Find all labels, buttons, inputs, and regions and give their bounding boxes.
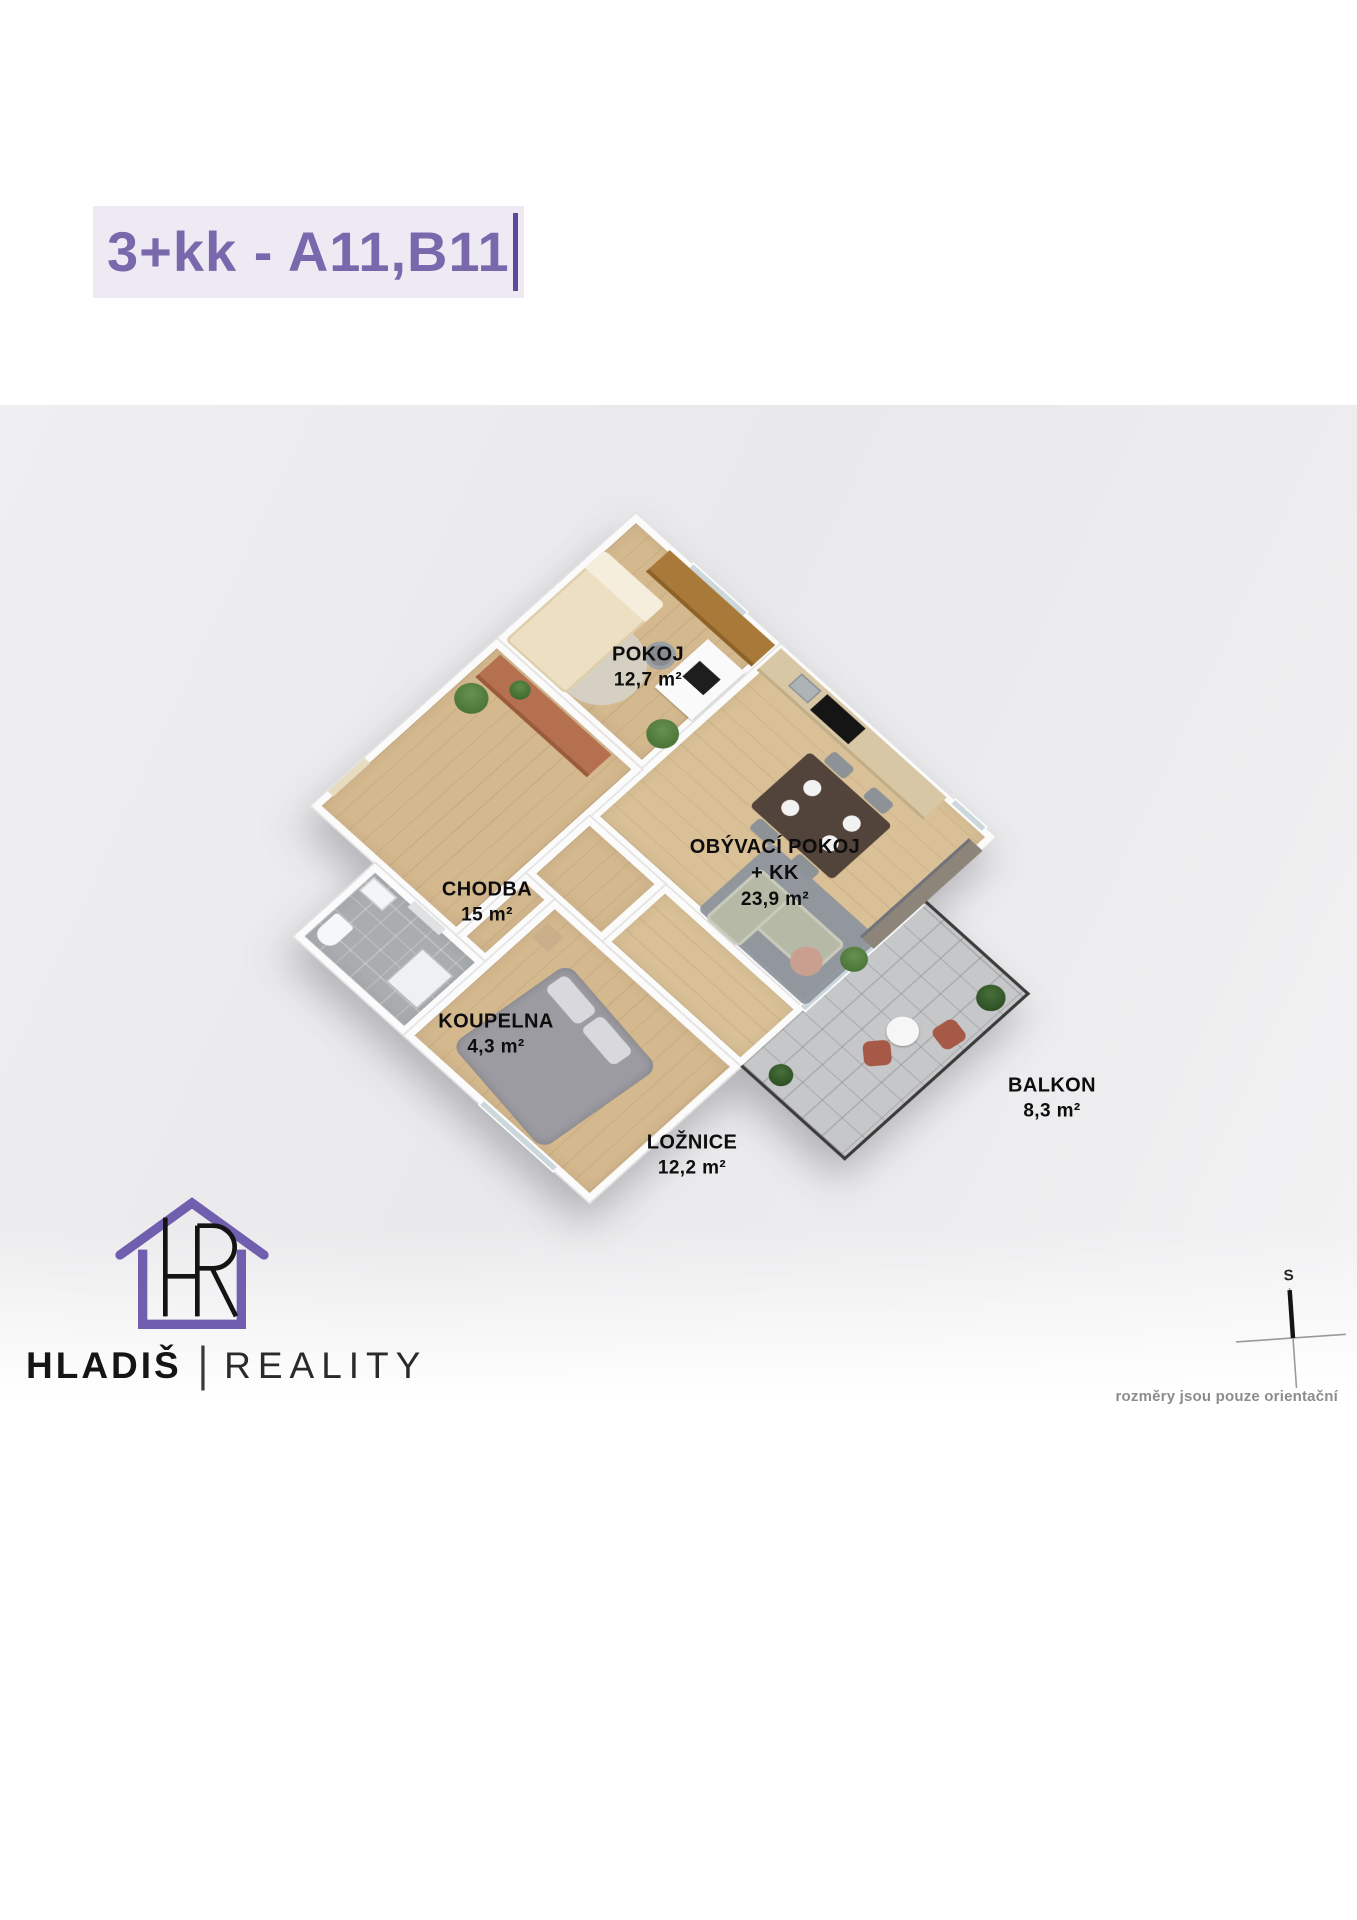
brand-name: HLADIŠ [26, 1345, 182, 1387]
balkon-chair [862, 1040, 892, 1067]
floorplan-photo: POKOJ 12,7 m² CHODBA 15 m² OBÝVACÍ POKOJ… [0, 405, 1357, 1430]
room-label-obyvaci: OBÝVACÍ POKOJ + KK 23,9 m² [690, 834, 860, 912]
room-area: 8,3 m² [1008, 1099, 1096, 1124]
room-name: BALKON [1008, 1072, 1096, 1098]
room-area: 23,9 m² [690, 887, 860, 912]
room-name: KOUPELNA [438, 1008, 553, 1034]
brand-suffix: REALITY [224, 1345, 427, 1387]
disclaimer-text: rozměry jsou pouze orientační [1115, 1388, 1338, 1405]
room-area: 15 m² [442, 903, 532, 928]
room-subname: + KK [690, 860, 860, 886]
compass-north-label: S [1283, 1267, 1294, 1285]
room-name: LOŽNICE [647, 1129, 738, 1155]
room-name: OBÝVACÍ POKOJ [690, 834, 860, 860]
room-name: POKOJ [612, 641, 684, 667]
page-title: 3+kk - A11,B11 [107, 206, 510, 298]
room-name: CHODBA [442, 876, 532, 902]
room-area: 12,2 m² [647, 1156, 738, 1181]
text-cursor [513, 213, 518, 291]
room-label-pokoj: POKOJ 12,7 m² [612, 641, 684, 692]
brand-wordmark: HLADIŠ | REALITY [26, 1343, 427, 1388]
page: { "title": { "text": "3+kk - A11,B11" },… [0, 0, 1357, 1920]
room-label-chodba: CHODBA 15 m² [442, 876, 532, 927]
title-field[interactable]: 3+kk - A11,B11 [93, 206, 524, 298]
room-label-loznice: LOŽNICE 12,2 m² [647, 1129, 738, 1180]
brand-divider: | [198, 1339, 208, 1393]
room-area: 12,7 m² [612, 668, 684, 693]
room-label-koupelna: KOUPELNA 4,3 m² [438, 1008, 553, 1059]
room-area: 4,3 m² [438, 1035, 553, 1060]
room-label-balkon: BALKON 8,3 m² [1008, 1072, 1096, 1123]
hladis-house-logo-icon [112, 1193, 272, 1333]
